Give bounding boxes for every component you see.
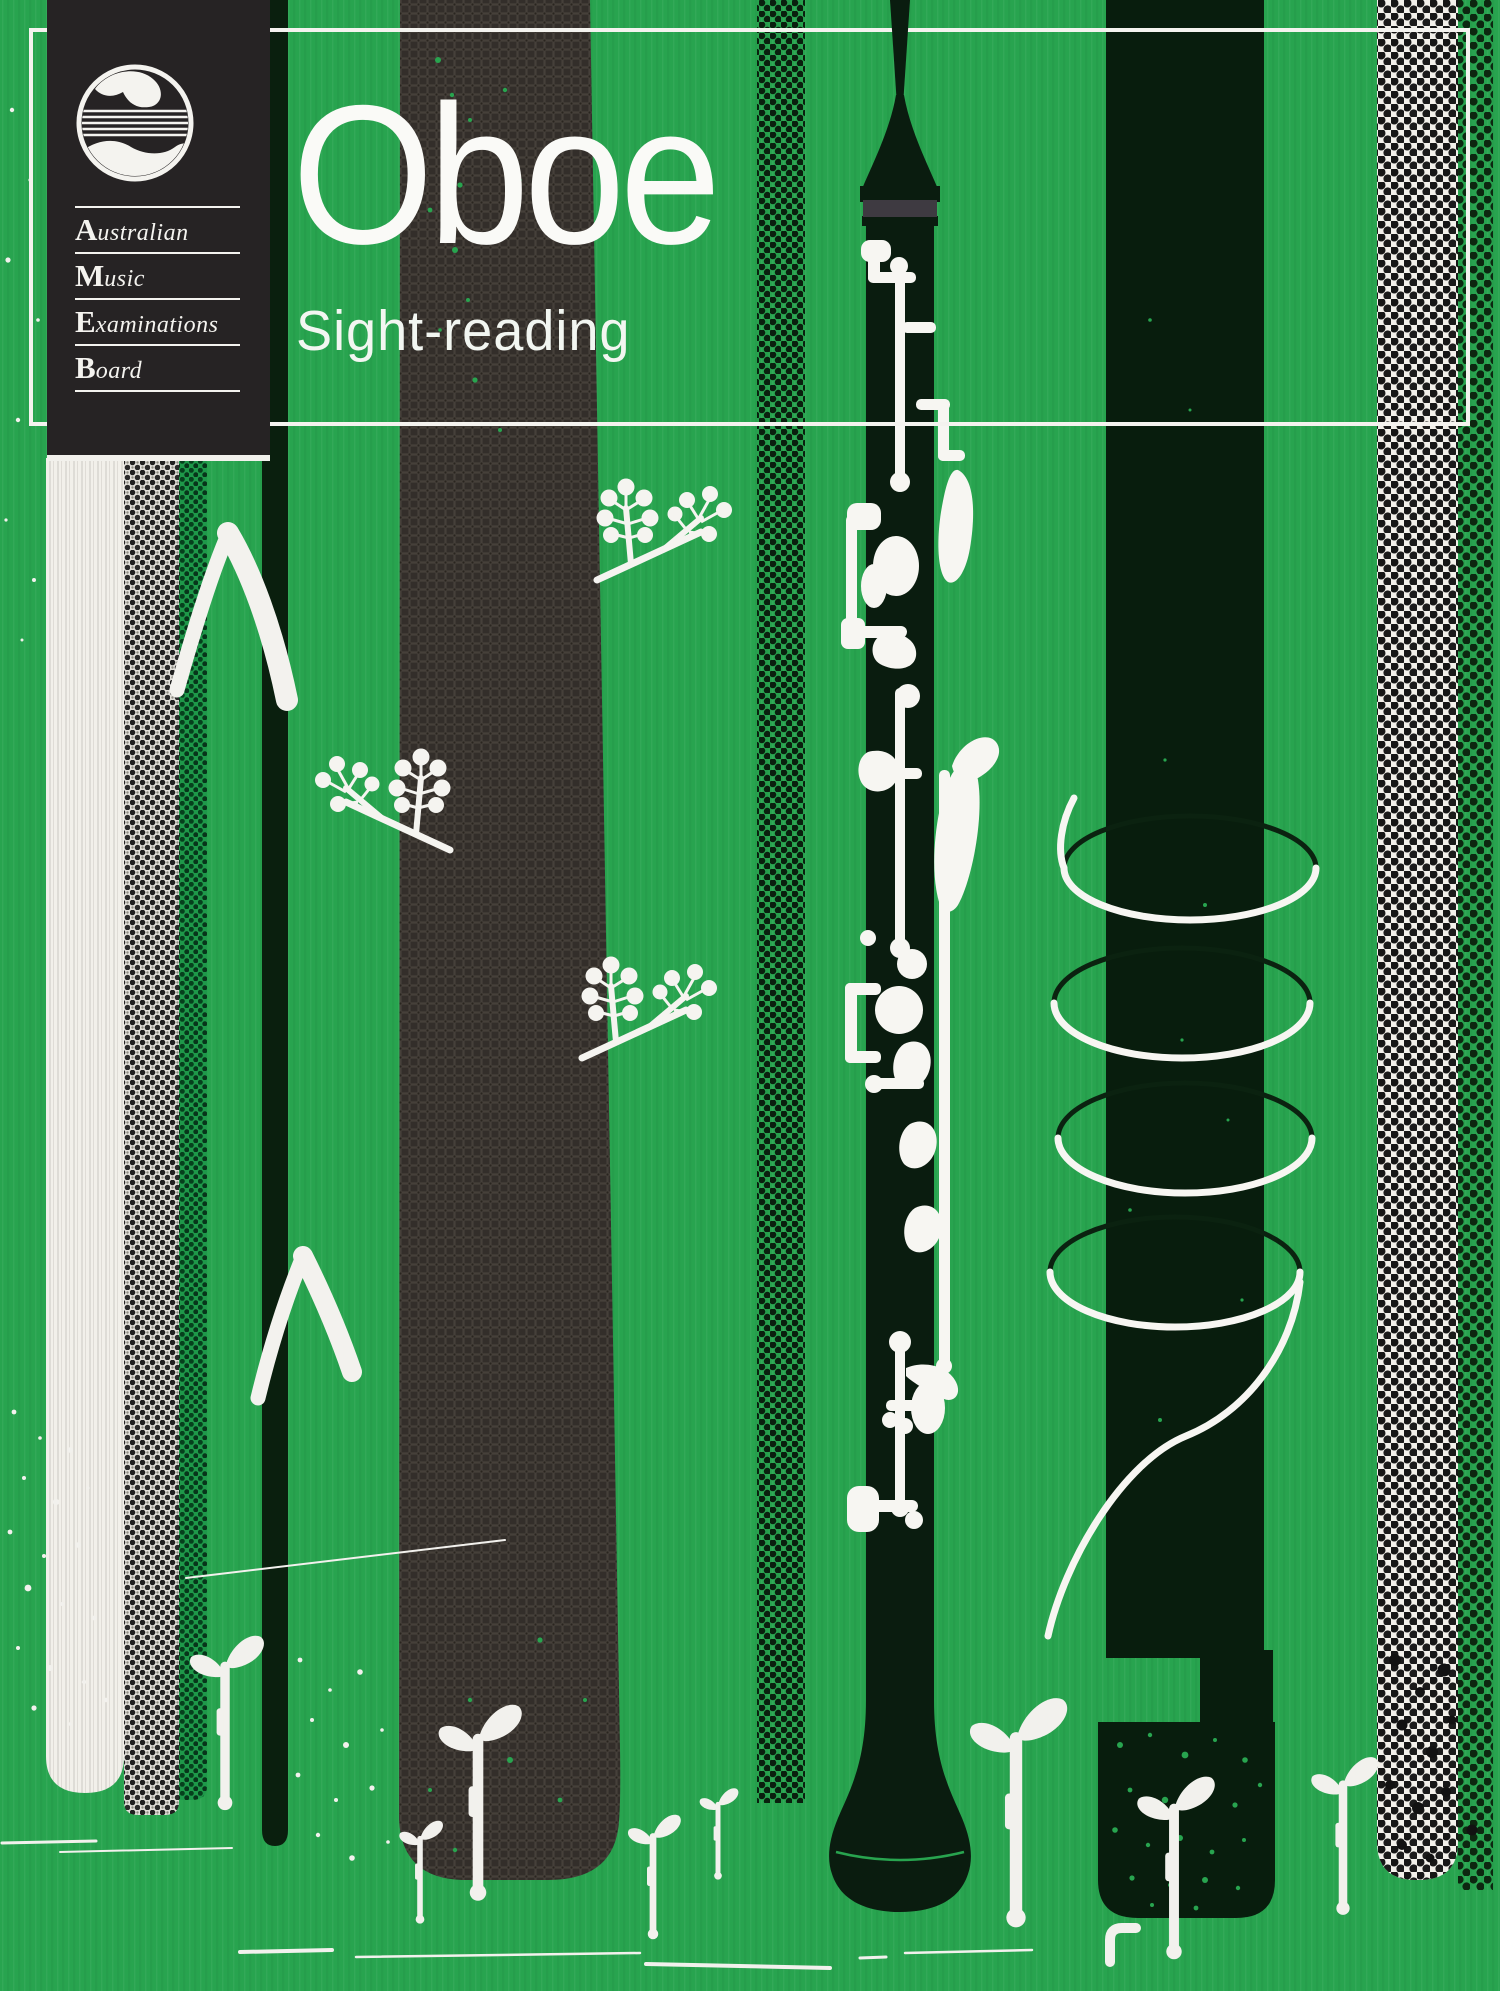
ameb-panel-bottom-edge bbox=[47, 455, 270, 461]
gray-weave-stripe bbox=[124, 458, 179, 1815]
ameb-wordmark: Australian Music Examinations Board bbox=[75, 206, 240, 392]
dark-stripe-right bbox=[1098, 0, 1275, 1918]
ameb-word-australian: Australian bbox=[75, 208, 240, 252]
page-title: Oboe bbox=[292, 76, 716, 274]
halftone-stripe-left bbox=[757, 0, 805, 1803]
ameb-word-board: Board bbox=[75, 346, 240, 390]
halftone-stripe-right bbox=[1377, 0, 1493, 1890]
page-subtitle: Sight-reading bbox=[296, 303, 630, 360]
white-stripe bbox=[46, 458, 124, 1793]
divider bbox=[75, 390, 240, 392]
oboe-cork-band bbox=[863, 200, 937, 217]
ameb-word-examinations: Examinations bbox=[75, 300, 240, 344]
book-cover: Oboe Sight-reading Australian Mus bbox=[0, 0, 1500, 1991]
ameb-word-music: Music bbox=[75, 254, 240, 298]
ameb-panel: Australian Music Examinations Board bbox=[47, 0, 270, 457]
ameb-logo-icon bbox=[75, 61, 195, 187]
